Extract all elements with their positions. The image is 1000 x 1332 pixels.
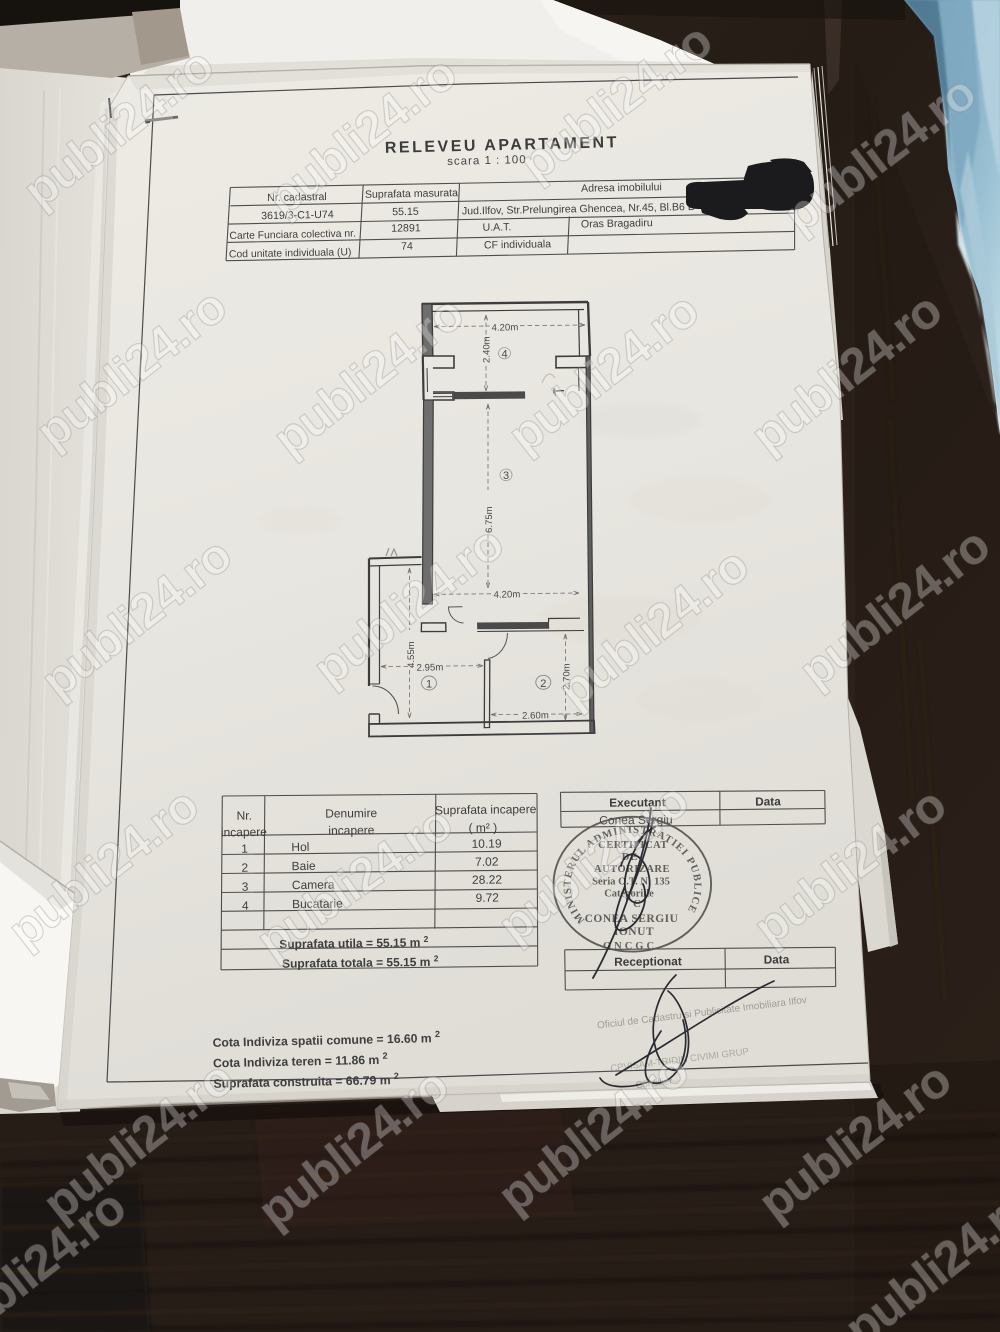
- svg-text:IONUT: IONUT: [614, 926, 654, 938]
- svg-text:incapere: incapere: [328, 823, 375, 838]
- svg-text:10.19: 10.19: [471, 837, 502, 851]
- svg-text:Baie: Baie: [292, 859, 317, 873]
- svg-text:incapere: incapere: [221, 825, 268, 840]
- svg-text:4: 4: [501, 349, 507, 361]
- svg-text:4.55m: 4.55m: [406, 641, 417, 668]
- svg-text:CONEA SERGIU: CONEA SERGIU: [585, 913, 679, 925]
- svg-text:Denumire: Denumire: [325, 806, 378, 821]
- svg-text:55.15: 55.15: [392, 206, 419, 219]
- svg-text:2.40m: 2.40m: [482, 336, 493, 363]
- svg-text:1: 1: [241, 842, 248, 856]
- svg-text:Suprafata masurata: Suprafata masurata: [365, 187, 458, 201]
- svg-text:4.20m: 4.20m: [492, 322, 519, 333]
- svg-text:1: 1: [426, 679, 432, 691]
- svg-text:4: 4: [242, 899, 249, 913]
- svg-text:9.72: 9.72: [475, 891, 499, 905]
- svg-text:12891: 12891: [391, 222, 421, 235]
- svg-text:3: 3: [242, 880, 249, 894]
- svg-text:2: 2: [540, 678, 546, 690]
- svg-text:CF individuala: CF individuala: [484, 238, 551, 251]
- svg-text:( m² ): ( m² ): [468, 821, 497, 835]
- svg-text:2: 2: [241, 861, 248, 875]
- svg-text:Nr.: Nr.: [236, 809, 252, 823]
- svg-text:U.A.T.: U.A.T.: [482, 221, 511, 234]
- svg-text:Suprafata incapere: Suprafata incapere: [435, 802, 537, 817]
- svg-text:Hol: Hol: [291, 840, 309, 854]
- svg-text:28.22: 28.22: [472, 873, 503, 887]
- svg-text:2.95m: 2.95m: [417, 662, 444, 673]
- svg-text:C: C: [633, 898, 641, 910]
- svg-text:74: 74: [401, 240, 413, 252]
- svg-text:2.60m: 2.60m: [522, 710, 549, 721]
- svg-text:Adresa imobilului: Adresa imobilului: [581, 181, 662, 195]
- svg-text:Receptionat: Receptionat: [614, 954, 682, 969]
- svg-text:Cod unitate individuala (U): Cod unitate individuala (U): [229, 247, 352, 260]
- svg-text:4.20m: 4.20m: [494, 589, 521, 600]
- svg-text:Data: Data: [755, 794, 781, 808]
- svg-text:3: 3: [503, 470, 509, 482]
- svg-text:Suprafata totala = 55.15 m 2: Suprafata totala = 55.15 m 2: [282, 953, 439, 970]
- svg-text:Oras Bragadiru: Oras Bragadiru: [581, 217, 653, 230]
- svg-text:7.02: 7.02: [475, 855, 499, 869]
